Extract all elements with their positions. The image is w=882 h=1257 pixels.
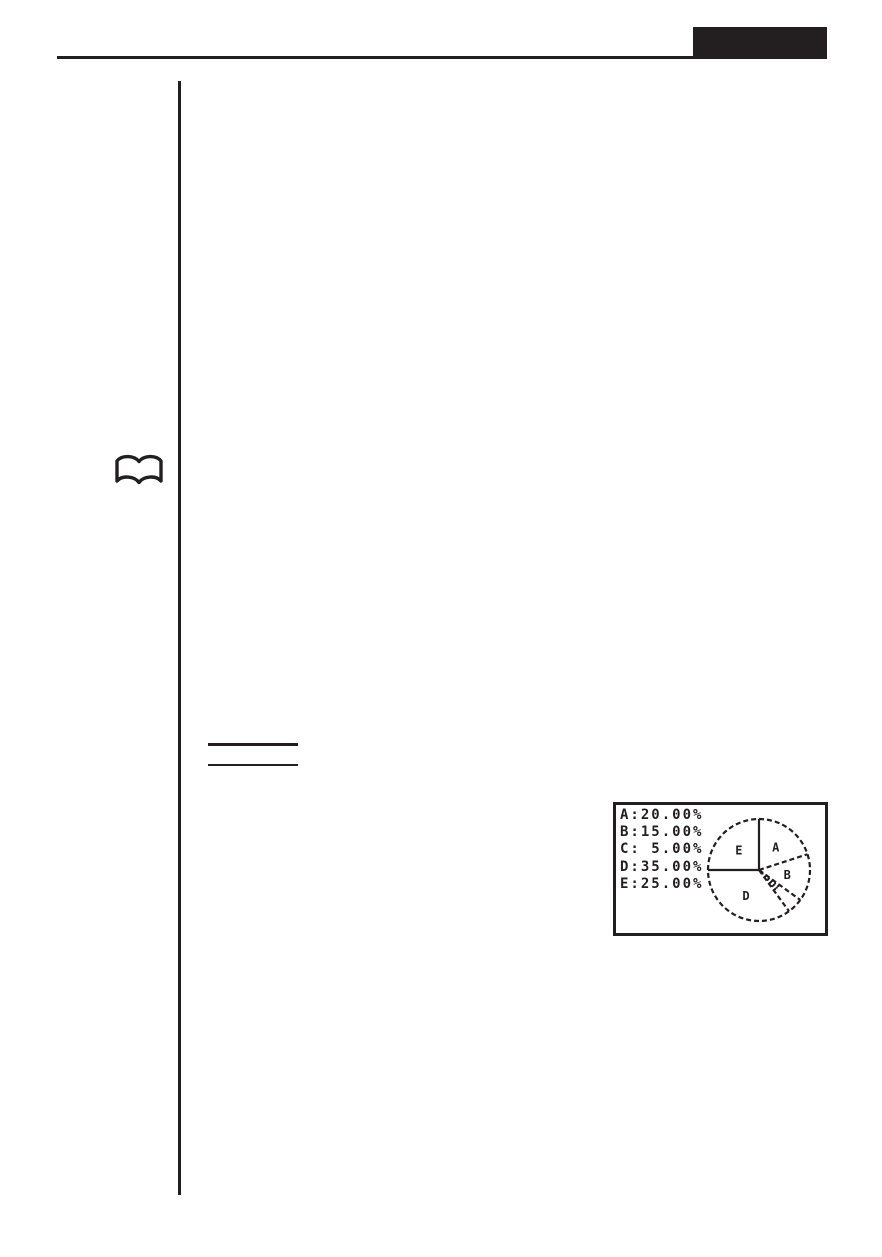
open-book-icon bbox=[113, 452, 165, 494]
manual-page: A:20.00%B:15.00%C: 5.00%D:35.00%E:25.00%… bbox=[0, 0, 882, 1257]
redacted-text-rule-bottom bbox=[208, 764, 298, 766]
pie-slice-label: D bbox=[742, 889, 749, 903]
pie-slice-label: A bbox=[772, 840, 780, 854]
pie-slice-label: E bbox=[735, 843, 742, 857]
margin-divider-rule bbox=[178, 81, 181, 1195]
pie-slice-label: B bbox=[784, 868, 791, 882]
chapter-tab bbox=[693, 27, 827, 58]
header-rule bbox=[57, 56, 827, 59]
pie-chart-svg: ABDE bbox=[616, 805, 825, 933]
calculator-screen-figure: A:20.00%B:15.00%C: 5.00%D:35.00%E:25.00%… bbox=[613, 802, 828, 936]
redacted-text-rule-top bbox=[208, 743, 298, 746]
